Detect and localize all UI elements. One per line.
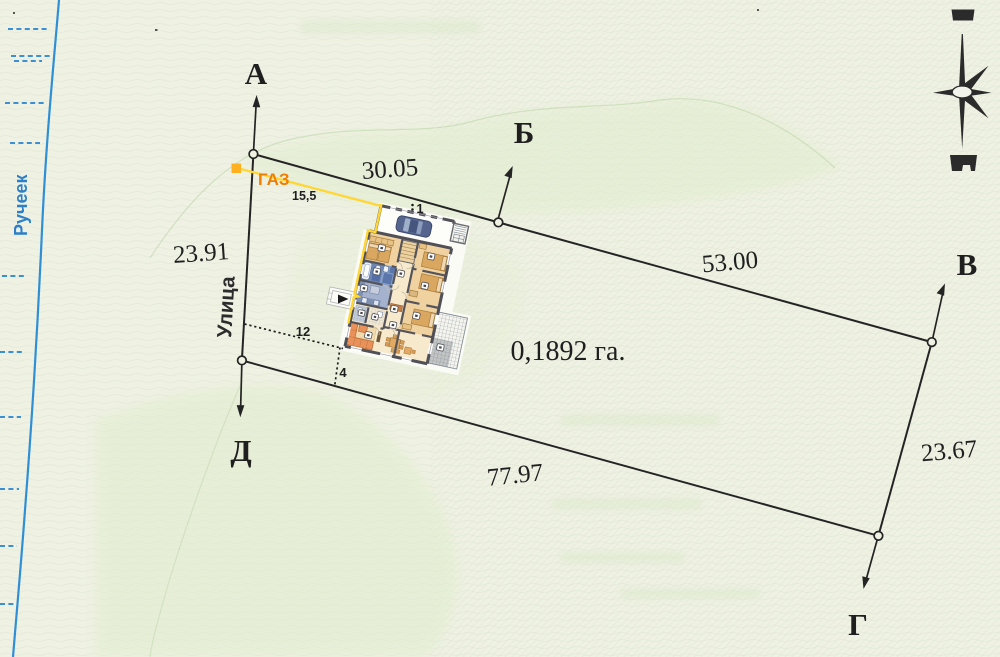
svg-text:Б: Б [514,115,535,150]
svg-text:23.91: 23.91 [172,238,230,269]
svg-text:53.00: 53.00 [701,247,759,279]
svg-text:23.67: 23.67 [920,436,978,468]
svg-text:12: 12 [296,324,310,339]
svg-text:Улица: Улица [213,275,240,338]
svg-text:4: 4 [339,365,347,380]
svg-text:15,5: 15,5 [292,189,316,203]
svg-text:Г: Г [848,607,868,642]
svg-text:Ручеек: Ручеек [11,174,31,236]
svg-text:А: А [245,56,268,91]
svg-text:Д: Д [230,433,251,468]
svg-text:В: В [957,247,978,282]
svg-text:30.05: 30.05 [361,154,419,185]
svg-text:0,1892 га.: 0,1892 га. [511,336,626,367]
svg-text:1: 1 [416,201,423,216]
svg-text:ГАЗ: ГАЗ [258,170,290,189]
